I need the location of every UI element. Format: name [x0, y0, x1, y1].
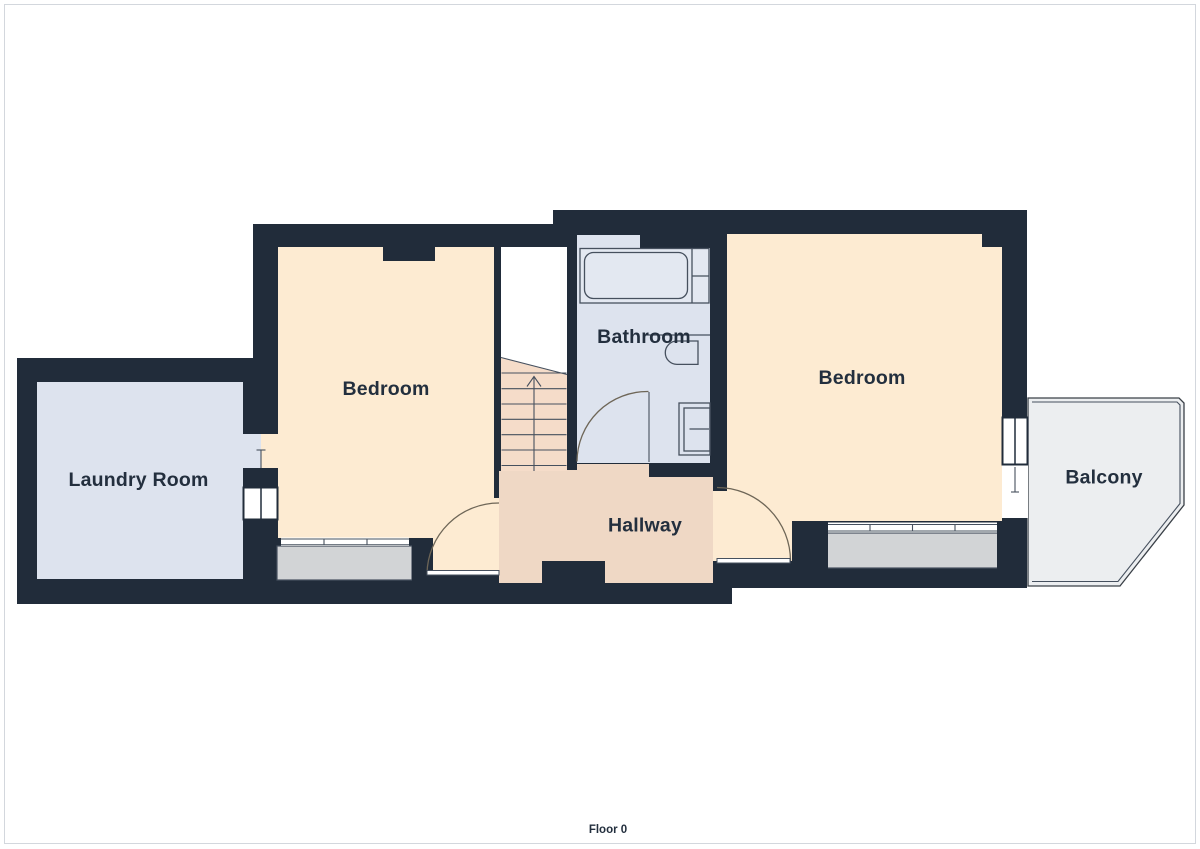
room-label-bedroom-left: Bedroom: [343, 378, 430, 400]
room-label-laundry: Laundry Room: [69, 469, 209, 491]
room-label-balcony: Balcony: [1065, 467, 1142, 489]
balcony-area: [1028, 398, 1184, 586]
wall-chimney-notch: [383, 247, 435, 261]
room-bedroom-left: [278, 247, 499, 571]
bay-window-right: [792, 521, 1027, 569]
staircase: [501, 247, 567, 471]
bathroom-alcove: [577, 235, 640, 248]
room-label-hallway: Hallway: [608, 515, 682, 537]
floor-caption: Floor 0: [589, 824, 627, 836]
bathtub-icon: [580, 249, 709, 304]
balcony-door: [1002, 417, 1028, 518]
room-bedroom-right: [713, 234, 1002, 561]
bedroom-left-door-leaf: [427, 571, 499, 576]
room-bathroom: [577, 235, 710, 463]
floorplan-page: Laundry Room Bedroom Bathroom Hallway Be…: [0, 0, 1200, 849]
bedroom-right-door-leaf: [717, 559, 790, 564]
room-label-bathroom: Bathroom: [597, 326, 691, 348]
room-label-bedroom-right: Bedroom: [819, 367, 906, 389]
floorplan-canvas: Laundry Room Bedroom Bathroom Hallway Be…: [0, 0, 1200, 849]
